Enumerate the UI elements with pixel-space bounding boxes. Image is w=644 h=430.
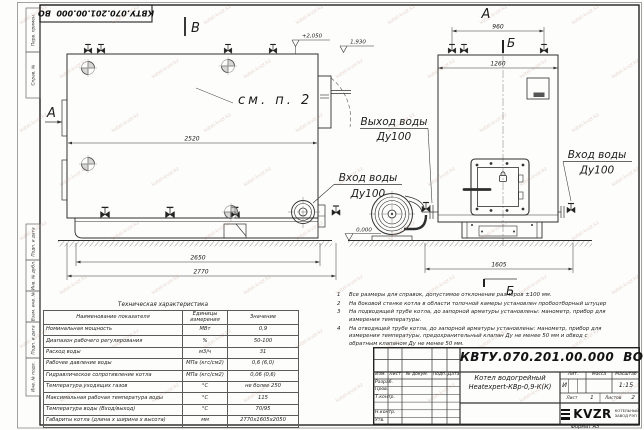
note-number: 1 (337, 292, 349, 300)
spec-cell: 2770х1605х2050 (228, 416, 299, 427)
scale-value: 1:15 (612, 382, 640, 389)
lit-label: Лит. (560, 373, 586, 378)
spec-cell: Рабочее давление воды (44, 359, 183, 370)
spec-cell: °С (183, 404, 228, 415)
sheet-cell: Лист 1 (560, 393, 600, 403)
spec-cell: Температура воды (Вход/выход) (44, 404, 183, 415)
spec-header-row: Наименование показателя Единицы измерени… (44, 311, 299, 325)
scale-label: Масштаб (612, 373, 640, 378)
note-text: Все размеры для справок, допустимое откл… (349, 292, 609, 300)
company-subtitle: КОТЕЛЬНЫЙ ЗАВОД РЭП (615, 409, 639, 418)
spec-row: Рабочее давление водыМПа (кгс/см2)0,6 (6… (44, 359, 299, 370)
spec-cell: °С (183, 381, 228, 392)
note-text: На боковой стенке котла в области топочн… (349, 301, 609, 309)
callout-inlet-left-dn: Ду100 (350, 188, 386, 200)
sig-row-label: Н.контр. (375, 410, 402, 415)
title-header-col: Дата (447, 373, 460, 378)
note-number: 4 (337, 326, 349, 349)
sig-row-label: Т.контр. (375, 395, 402, 400)
spec-header-name: Наименование показателя (44, 311, 183, 325)
spec-row: Температура воды (Вход/выход)°С70/95 (44, 404, 299, 415)
company-name: KVZR (573, 407, 612, 421)
elev-ground: 0,000 (356, 228, 372, 234)
spec-cell: мм (183, 416, 228, 427)
spec-cell: % (183, 336, 228, 347)
dim-2770: 2770 (193, 269, 208, 276)
note-item: 4На отводящей трубе котла, до запорной а… (337, 326, 609, 349)
spec-cell: °С (183, 393, 228, 404)
lit-value: И (560, 382, 569, 389)
dim-960: 960 (492, 24, 504, 31)
spec-row: Расход водым3/ч31 (44, 347, 299, 358)
spec-cell: 31 (228, 347, 299, 358)
front-view (348, 42, 592, 248)
note-item: 2На боковой стенке котла в области топоч… (337, 301, 609, 309)
spec-row: Максимальная рабочая температура воды°С1… (44, 393, 299, 404)
sig-row-label: Пров. (375, 387, 402, 392)
spec-cell: МПа (кгс/см2) (183, 370, 228, 381)
spec-row: Температура уходящих газов°Сне более 250 (44, 381, 299, 392)
spec-cell: 0,9 (228, 325, 299, 336)
view-label-plan: В (191, 21, 200, 36)
section-label-top: Б (507, 36, 515, 50)
stamp-top: КВТУ.070.201.00.000 ВО (38, 9, 154, 18)
spec-cell: Габариты котла (длина х ширина х высота) (44, 416, 183, 427)
callout-inlet-right-title: Вход воды (568, 149, 627, 161)
spec-table-title: Техническая характеристика (43, 302, 283, 308)
company-logo-icon (561, 409, 570, 420)
title-header-col: Подп. (432, 373, 447, 378)
spec-row: Габариты котла (длина х ширина х высота)… (44, 416, 299, 427)
callout-inlet-right-dn: Ду100 (579, 165, 615, 177)
side-label-3: Инв. № дубл. (31, 261, 37, 290)
spec-cell: 115 (228, 393, 299, 404)
side-label-1: Справ. № (31, 64, 37, 85)
spec-header-value: Значение (228, 311, 299, 325)
notes-list: 1Все размеры для справок, допустимое отк… (337, 292, 609, 350)
callout-outlet-dn: Ду100 (376, 131, 412, 143)
sig-row-label: Утв. (375, 418, 402, 423)
side-label-5: Подп. и дата (31, 325, 37, 355)
note-number: 2 (337, 301, 349, 309)
elevation-marks (292, 40, 381, 241)
spec-cell: 70/95 (228, 404, 299, 415)
spec-cell: не более 250 (228, 381, 299, 392)
dim-2520: 2520 (184, 136, 199, 143)
mass-label: Масса (586, 373, 612, 378)
callout-see-note: см. п. 2 (238, 93, 312, 108)
side-label-0: Перв. примен. (31, 14, 37, 46)
title-designation: КВТУ.070.201.00.000 ВО (460, 351, 640, 364)
spec-row: Диапазон рабочего регулирования%50-100 (44, 336, 299, 347)
elev-door: 1,930 (350, 40, 366, 46)
sig-row-label: Разраб. (375, 380, 402, 385)
spec-header-units: Единицы измерения (183, 311, 228, 325)
note-item: 1Все размеры для справок, допустимое отк… (337, 292, 609, 300)
spec-row: Номинальная мощностьМВт0,9 (44, 325, 299, 336)
title-header-col: № докум. (402, 373, 432, 378)
side-label-4: Взам. инв. № (31, 291, 37, 321)
note-number: 3 (337, 309, 349, 324)
spec-table: Техническая характеристика Наименование … (43, 302, 283, 428)
view-label-front: А (481, 7, 491, 22)
spec-cell: Максимальная рабочая температура воды (44, 393, 183, 404)
sheet-label: Лист (566, 396, 577, 401)
spec-cell: 50-100 (228, 336, 299, 347)
view-label-side: А (46, 106, 56, 121)
sheets-label: Листов (605, 396, 621, 401)
callouts: см. п. 2 Выход воды Ду100 Вход воды Ду10… (196, 88, 632, 203)
dim-1605: 1605 (491, 262, 506, 269)
side-label-6: Инв. № подл. (31, 362, 37, 392)
spec-cell: Гидравлическое сопротивление котла (44, 370, 183, 381)
title-block: КВТУ.070.201.00.000 ВО Котел водогрейный… (373, 347, 640, 425)
spec-cell: м3/ч (183, 347, 228, 358)
side-label-2: Подп. и дата (31, 227, 37, 257)
company-cell: KVZR КОТЕЛЬНЫЙ ЗАВОД РЭП (561, 404, 639, 424)
spec-cell: Номинальная мощность (44, 325, 183, 336)
title-header-col: Лист (388, 373, 402, 378)
spec-cell: МПа (кгс/см2) (183, 359, 228, 370)
dim-1260: 1260 (490, 61, 505, 68)
spec-cell: 0,6 (6,0) (228, 359, 299, 370)
spec-cell: 0,06 (0,6) (228, 370, 299, 381)
view-marks: В А А Б Б (45, 7, 517, 298)
product-name-line1: Котел водогрейный (462, 375, 558, 382)
note-text: На отводящей трубе котла, до запорной ар… (349, 326, 609, 349)
dim-2650: 2650 (190, 255, 205, 262)
format-label: Формат А3 (545, 424, 625, 430)
note-text: На подводящей трубе котла, до запорной а… (349, 309, 609, 324)
sheets-value: 2 (631, 395, 635, 401)
product-name-line2: Heatexpert-КВр-0,9-К(К) (462, 384, 558, 391)
spec-cell: Диапазон рабочего регулирования (44, 336, 183, 347)
title-header-col: Изм. (373, 373, 388, 378)
spec-cell: Расход воды (44, 347, 183, 358)
sheet-value: 1 (590, 395, 594, 401)
sheets-cell: Листов 2 (600, 393, 640, 403)
callout-inlet-left-title: Вход воды (339, 172, 398, 184)
elev-top: +2,050 (302, 34, 323, 40)
side-view (58, 44, 351, 246)
note-item: 3На подводящей трубе котла, до запорной … (337, 309, 609, 324)
drawing-sheet: Перв. примен. Справ. № Подп. и дата Инв.… (0, 0, 644, 430)
spec-row: Гидравлическое сопротивление котлаМПа (к… (44, 370, 299, 381)
spec-cell: Температура уходящих газов (44, 381, 183, 392)
callout-outlet-title: Выход воды (361, 116, 428, 128)
spec-cell: МВт (183, 325, 228, 336)
